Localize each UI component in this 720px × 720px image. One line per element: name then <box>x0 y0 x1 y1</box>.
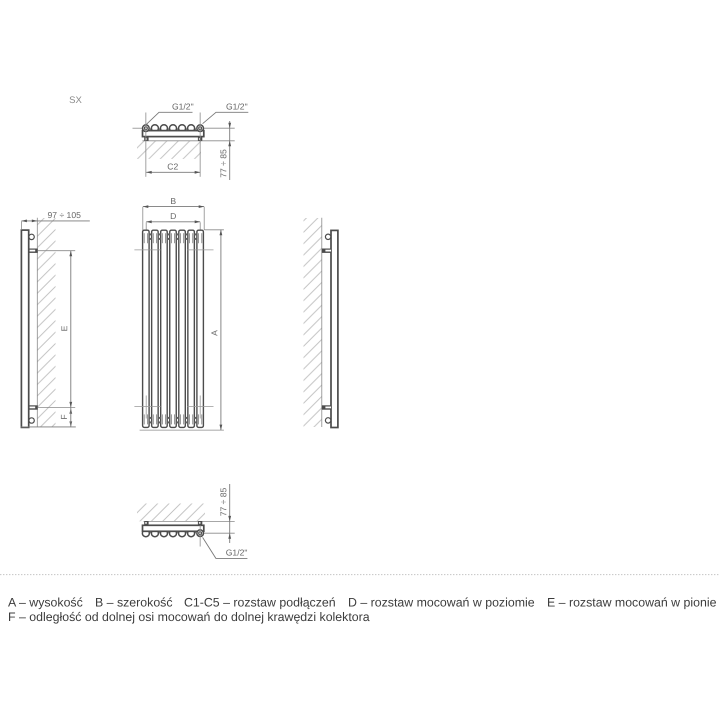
svg-text:E – rozstaw mocowań w pionie: E – rozstaw mocowań w pionie <box>547 596 717 610</box>
svg-text:F – odległość od dolnej osi m: F – odległość od dolnej osi mocowań do d… <box>8 610 370 624</box>
svg-text:F: F <box>59 414 69 419</box>
svg-text:E: E <box>59 325 69 331</box>
svg-text:97 ÷ 105: 97 ÷ 105 <box>48 210 82 220</box>
svg-text:C1-C5 – rozstaw podłączeń: C1-C5 – rozstaw podłączeń <box>184 596 336 610</box>
svg-text:B – szerokość: B – szerokość <box>95 596 173 610</box>
svg-text:A – wysokość: A – wysokość <box>8 596 83 610</box>
svg-text:G1/2": G1/2" <box>226 548 248 558</box>
svg-text:77 ÷ 85: 77 ÷ 85 <box>218 149 228 178</box>
svg-text:G1/2": G1/2" <box>172 101 194 111</box>
svg-text:A: A <box>209 330 219 336</box>
svg-text:D – rozstaw mocowań w poziomie: D – rozstaw mocowań w poziomie <box>348 596 535 610</box>
svg-text:D: D <box>170 211 176 221</box>
svg-text:B: B <box>170 196 176 206</box>
svg-text:C2: C2 <box>167 162 178 172</box>
svg-text:G1/2": G1/2" <box>226 101 248 111</box>
svg-text:77 ÷ 85: 77 ÷ 85 <box>218 487 228 516</box>
svg-text:SX: SX <box>69 95 82 106</box>
